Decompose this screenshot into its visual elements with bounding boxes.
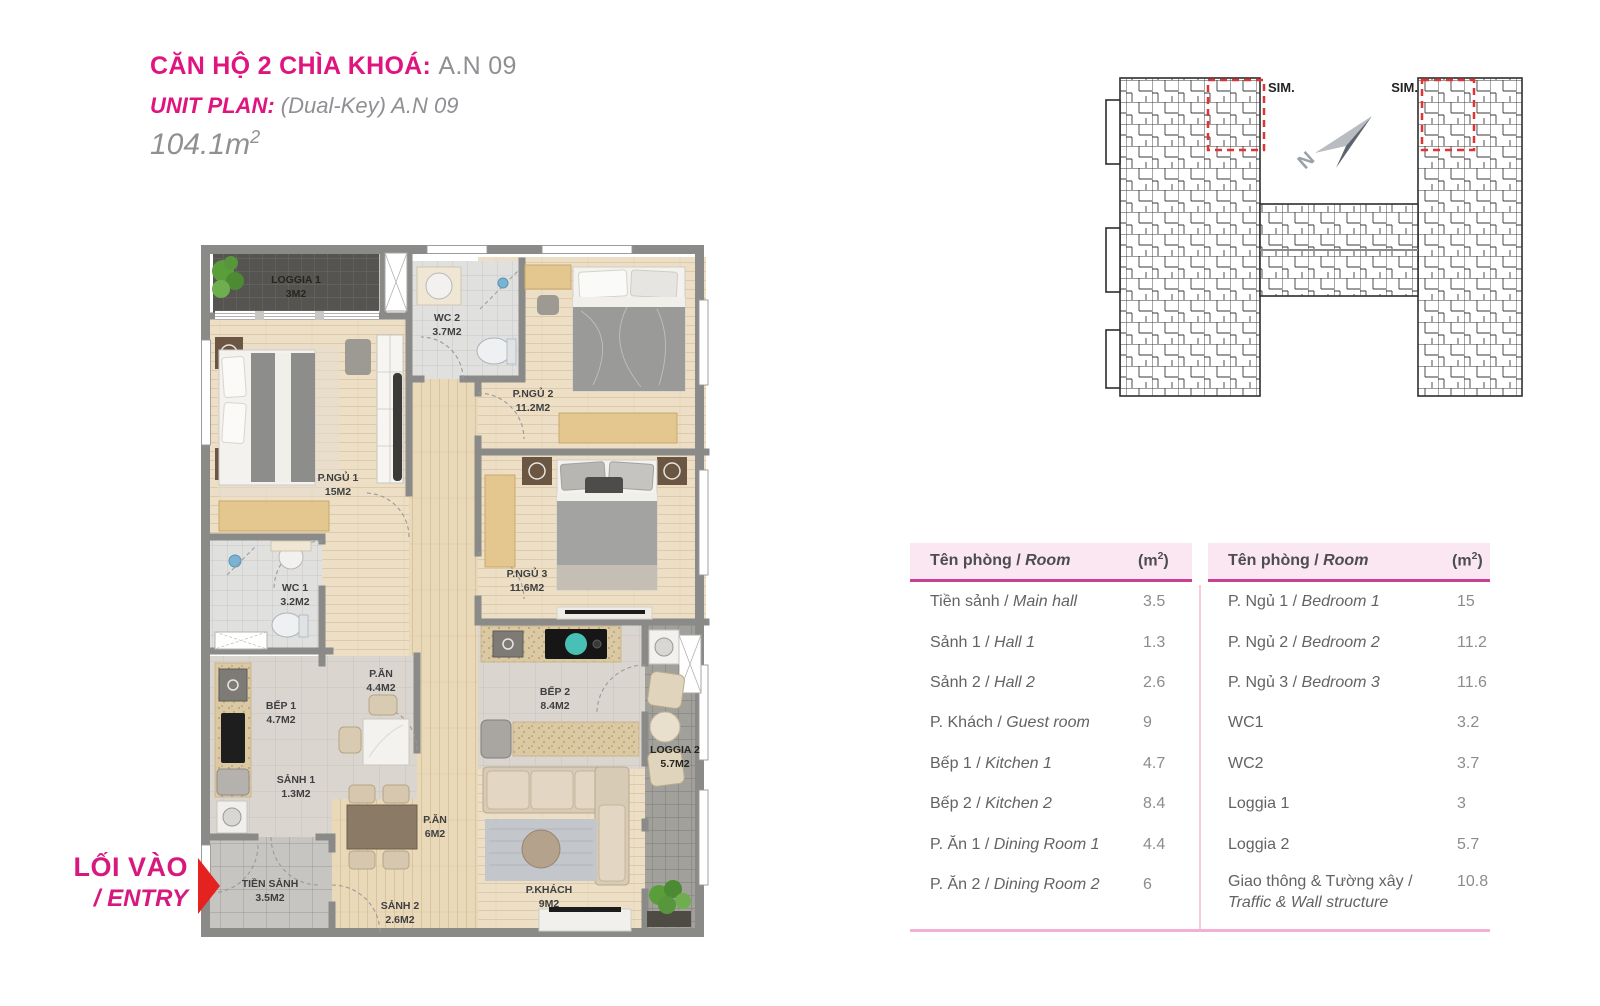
table-row: Loggia 25.7 bbox=[1208, 824, 1490, 864]
table-row: P. Ngủ 2 / Bedroom 211.2 bbox=[1208, 622, 1490, 662]
subtitle-detail: (Dual-Key) A.N 09 bbox=[281, 93, 459, 118]
table-row: P. Ngủ 3 / Bedroom 311.6 bbox=[1208, 663, 1490, 703]
floor-plan: LOGGIA 1 3M2 WC 2 3.7M2 P.NGỦ 2 11.2M2 P… bbox=[197, 245, 712, 942]
table-row: P. Ăn 1 / Dining Room 14.4 bbox=[910, 824, 1192, 864]
room-label-livingroom: P.KHÁCH bbox=[526, 883, 572, 896]
unit-header: (m2) bbox=[1452, 551, 1483, 570]
svg-text:5.7M2: 5.7M2 bbox=[660, 758, 689, 770]
area-table-left-column: Tên phòng / Room (m2) Tiền sảnh / Main h… bbox=[910, 543, 1192, 905]
svg-text:3.5M2: 3.5M2 bbox=[255, 892, 284, 904]
table-header: Tên phòng / Room (m2) bbox=[1208, 543, 1490, 582]
svg-text:4.4M2: 4.4M2 bbox=[366, 682, 395, 694]
floor-plan-drawing: LOGGIA 1 3M2 WC 2 3.7M2 P.NGỦ 2 11.2M2 P… bbox=[197, 245, 712, 937]
key-plan-drawing: SIM. SIM. N bbox=[1100, 58, 1530, 406]
page-subtitle: UNIT PLAN: (Dual-Key) A.N 09 bbox=[150, 93, 517, 119]
room-label-dining1: P.ĂN bbox=[369, 667, 393, 680]
table-row: P. Ăn 2 / Dining Room 26 bbox=[910, 865, 1192, 905]
building-outline bbox=[1106, 78, 1522, 396]
room-label-loggia2: LOGGIA 2 bbox=[650, 744, 700, 756]
svg-text:8.4M2: 8.4M2 bbox=[540, 700, 569, 712]
table-row: Bếp 1 / Kitchen 14.7 bbox=[910, 744, 1192, 784]
room-label-bedroom2: P.NGỦ 2 bbox=[513, 387, 554, 400]
table-row: Giao thông & Tường xây /Traffic & Wall s… bbox=[1208, 865, 1490, 929]
table-row: P. Ngủ 1 / Bedroom 115 bbox=[1208, 582, 1490, 622]
svg-text:15M2: 15M2 bbox=[325, 486, 351, 498]
table-row: P. Khách / Guest room9 bbox=[910, 703, 1192, 743]
svg-text:2.6M2: 2.6M2 bbox=[385, 914, 414, 926]
ac-shaft-icon bbox=[385, 253, 407, 311]
table-row: Sảnh 2 / Hall 22.6 bbox=[910, 663, 1192, 703]
entry-arrow-icon bbox=[196, 856, 222, 916]
svg-text:11.6M2: 11.6M2 bbox=[510, 582, 545, 594]
svg-text:3.2M2: 3.2M2 bbox=[280, 596, 309, 608]
balcony-slider bbox=[215, 311, 379, 320]
entry-marker: LỐI VÀO / ENTRY bbox=[36, 852, 188, 913]
key-plan: SIM. SIM. N bbox=[1100, 58, 1530, 411]
table-row: Tiền sảnh / Main hall3.5 bbox=[910, 582, 1192, 622]
room-label-kitchen2: BẾP 2 bbox=[540, 685, 570, 698]
svg-text:1.3M2: 1.3M2 bbox=[281, 788, 310, 800]
room-label-wc1: WC 1 bbox=[282, 582, 308, 594]
entry-label-vietnamese: LỐI VÀO bbox=[36, 852, 188, 883]
svg-text:3M2: 3M2 bbox=[286, 288, 307, 300]
unit-area: 104.1m2 bbox=[150, 127, 517, 162]
svg-text:11.2M2: 11.2M2 bbox=[516, 402, 551, 414]
title-vietnamese: CĂN HỘ 2 CHÌA KHOÁ: bbox=[150, 52, 431, 80]
unit-code: A.N 09 bbox=[438, 52, 516, 80]
north-letter: N bbox=[1294, 148, 1319, 174]
brochure-page: CĂN HỘ 2 CHÌA KHOÁ: A.N 09 UNIT PLAN: (D… bbox=[0, 0, 1600, 1006]
svg-text:3.7M2: 3.7M2 bbox=[432, 326, 461, 338]
kitchen1-fixtures bbox=[215, 663, 251, 833]
table-row: Loggia 13 bbox=[1208, 784, 1490, 824]
table-row: Bếp 2 / Kitchen 28.4 bbox=[910, 784, 1192, 824]
area-table: Tên phòng / Room (m2) Tiền sảnh / Main h… bbox=[910, 543, 1490, 934]
svg-text:4.7M2: 4.7M2 bbox=[266, 714, 295, 726]
table-row: WC13.2 bbox=[1208, 703, 1490, 743]
svg-text:6M2: 6M2 bbox=[425, 828, 446, 840]
sim-label-right: SIM. bbox=[1391, 80, 1418, 95]
table-row: Sảnh 1 / Hall 11.3 bbox=[910, 622, 1192, 662]
entry-label-english: / ENTRY bbox=[36, 885, 188, 913]
room-label-wc2: WC 2 bbox=[434, 312, 460, 324]
table-row: WC23.7 bbox=[1208, 744, 1490, 784]
room-label-hall2: SẢNH 2 bbox=[381, 899, 420, 912]
title-block: CĂN HỘ 2 CHÌA KHOÁ: A.N 09 UNIT PLAN: (D… bbox=[150, 52, 517, 162]
north-arrow-icon: N bbox=[1294, 116, 1372, 174]
room-label-loggia1: LOGGIA 1 bbox=[271, 274, 321, 286]
table-bottom-rule bbox=[910, 929, 1490, 932]
room-label-kitchen1: BẾP 1 bbox=[266, 699, 296, 712]
room-label-bedroom1: P.NGỦ 1 bbox=[318, 471, 359, 484]
subtitle-english: UNIT PLAN: bbox=[150, 93, 275, 118]
room-label-dining2: P.ĂN bbox=[423, 813, 447, 826]
table-header: Tên phòng / Room (m2) bbox=[910, 543, 1192, 582]
room-label-bedroom3: P.NGỦ 3 bbox=[507, 567, 548, 580]
room-label-mainhall: TIỀN SẢNH bbox=[242, 877, 299, 890]
svg-text:9M2: 9M2 bbox=[539, 898, 560, 910]
wc1-ledge-icon bbox=[215, 632, 267, 649]
page-title: CĂN HỘ 2 CHÌA KHOÁ: A.N 09 bbox=[150, 52, 517, 81]
unit-header: (m2) bbox=[1138, 551, 1169, 570]
table-column-divider bbox=[1199, 585, 1201, 931]
area-table-right-column: Tên phòng / Room (m2) P. Ngủ 1 / Bedroom… bbox=[1208, 543, 1490, 929]
sim-label-left: SIM. bbox=[1268, 80, 1295, 95]
room-label-hall1: SẢNH 1 bbox=[277, 773, 316, 786]
